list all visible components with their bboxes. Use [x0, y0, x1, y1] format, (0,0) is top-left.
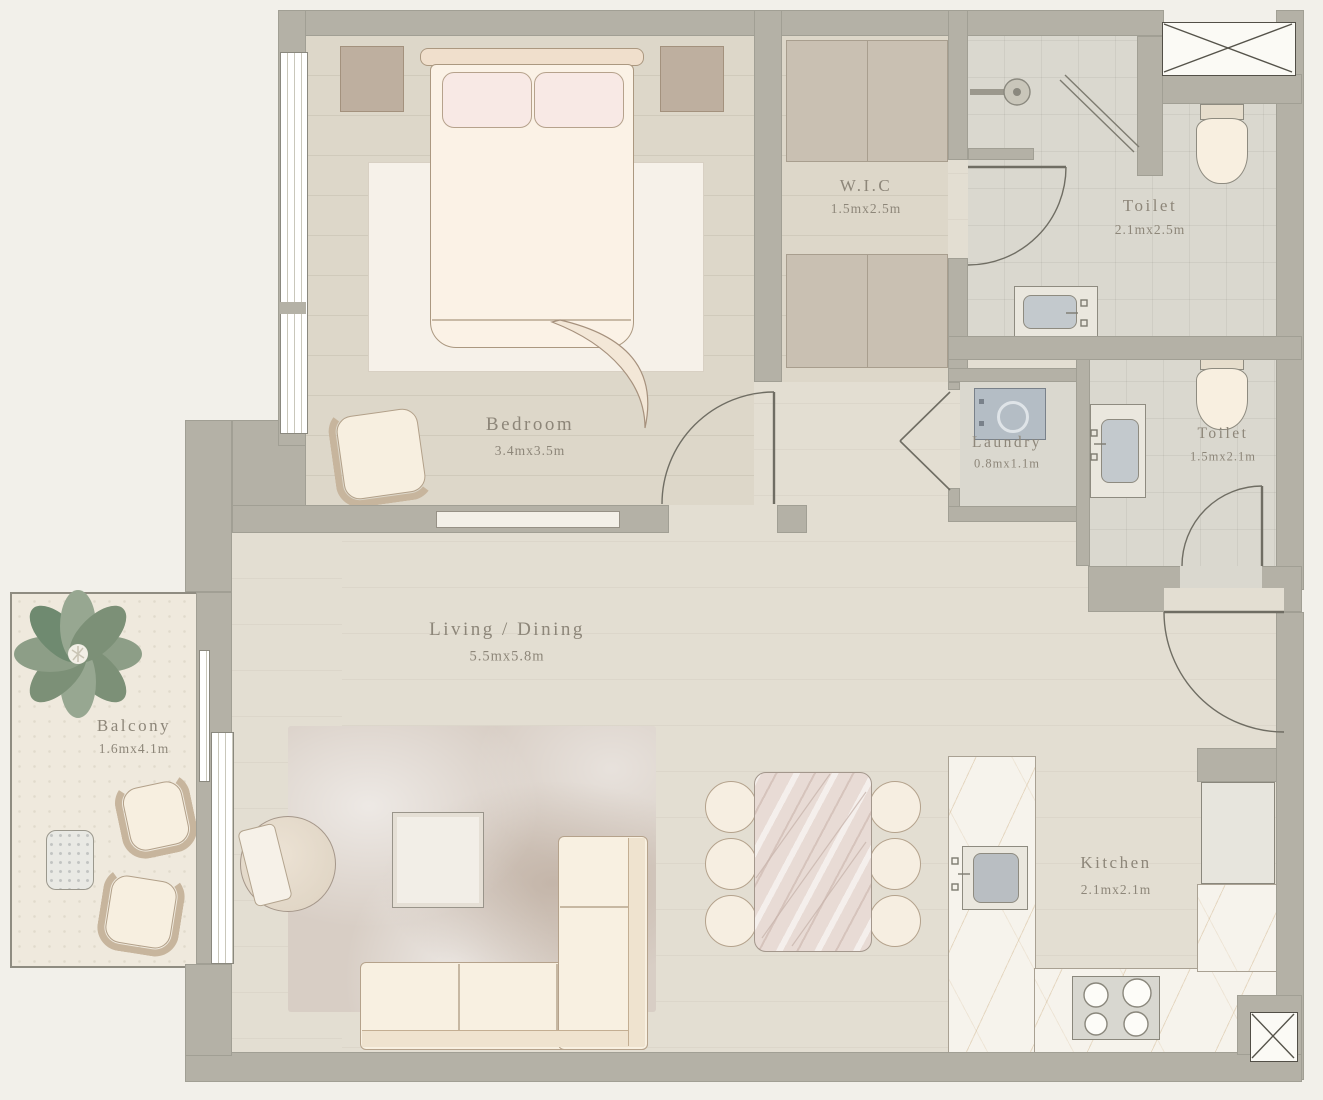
toilet-right-label: Toilet: [1198, 425, 1249, 443]
wall: [948, 368, 1088, 382]
service-shaft-bottom: [1250, 1012, 1298, 1062]
wall: [1162, 74, 1302, 104]
kitchen-sink: [973, 853, 1019, 903]
balcony-slider-panel: [211, 732, 234, 964]
balcony-chair: [120, 778, 192, 853]
balcony-label: Balcony: [97, 716, 171, 736]
washer-door: [997, 401, 1029, 433]
doorway: [1164, 588, 1284, 612]
wall: [278, 10, 1164, 36]
wall: [185, 1052, 1302, 1082]
wall: [948, 382, 960, 390]
balcony-slider-panel: [199, 650, 210, 782]
tv-console-niche: [436, 511, 620, 528]
wall: [185, 420, 232, 592]
wall: [754, 10, 782, 382]
toilet-top-bowl: [1196, 118, 1248, 184]
wic-label: W.I.C: [840, 176, 893, 196]
toilet-right-dims: 1.5mx2.1m: [1190, 450, 1256, 465]
washer-knob: [979, 399, 984, 404]
wall: [948, 336, 1302, 360]
toilet-right-vanity: [1090, 404, 1146, 498]
kitchen-counter-right: [1197, 884, 1279, 972]
coffee-table: [392, 812, 484, 908]
refrigerator: [1201, 782, 1275, 884]
dining-chair: [705, 895, 757, 947]
wall: [948, 10, 968, 160]
kitchen-sink-counter: [962, 846, 1028, 910]
dining-chair: [869, 781, 921, 833]
laundry-label: Laundry: [972, 434, 1042, 452]
wall: [1076, 336, 1090, 566]
service-shaft-top: [1162, 22, 1296, 76]
stove: [1072, 976, 1160, 1040]
shower-ledge: [968, 148, 1034, 160]
wall: [185, 964, 232, 1056]
dining-chair: [869, 895, 921, 947]
wall: [948, 258, 968, 382]
wardrobe-top: [786, 40, 948, 162]
window-divider: [280, 302, 306, 314]
toilet-right-bowl: [1196, 368, 1248, 430]
bedroom-dims: 3.4mx3.5m: [495, 443, 566, 459]
dining-chair: [705, 838, 757, 890]
bathroom-sink: [1023, 295, 1077, 329]
nightstand-right: [660, 46, 724, 112]
living-label: Living / Dining: [429, 619, 585, 641]
kitchen-dims: 2.1mx2.1m: [1081, 882, 1152, 898]
balcony-chair: [103, 873, 179, 950]
balcony-side-table: [46, 830, 94, 890]
bed-pillow-right: [534, 72, 624, 128]
laundry-dims: 0.8mx1.1m: [974, 457, 1040, 472]
dining-chair: [869, 838, 921, 890]
toilet-top-dims: 2.1mx2.5m: [1115, 222, 1186, 238]
sofa-back-right: [628, 838, 645, 1046]
washing-machine: [974, 388, 1046, 440]
doorway: [1180, 566, 1262, 588]
wall: [1197, 748, 1277, 782]
kitchen-label: Kitchen: [1080, 853, 1151, 873]
bedroom-armchair: [335, 407, 428, 502]
bathroom-vanity: [1014, 286, 1098, 338]
nightstand-left: [340, 46, 404, 112]
floor-plan: Bedroom 3.4mx3.5m W.I.C 1.5mx2.5m Toilet…: [0, 0, 1323, 1100]
washer-knob: [979, 421, 984, 426]
wall: [777, 505, 807, 533]
dining-table: [754, 772, 872, 952]
toilet-right-sink: [1101, 419, 1139, 483]
wall: [1137, 36, 1163, 176]
bedroom-window: [280, 52, 308, 434]
toilet-top-label: Toilet: [1123, 196, 1177, 216]
dining-chair: [705, 781, 757, 833]
wic-dims: 1.5mx2.5m: [831, 201, 902, 217]
bed-pillow-left: [442, 72, 532, 128]
wall: [948, 506, 1088, 522]
sofa-back-bottom: [362, 1030, 644, 1047]
wardrobe-bottom: [786, 254, 948, 368]
balcony-dims: 1.6mx4.1m: [99, 741, 170, 757]
bedroom-label: Bedroom: [486, 414, 574, 436]
living-dims: 5.5mx5.8m: [469, 649, 544, 666]
